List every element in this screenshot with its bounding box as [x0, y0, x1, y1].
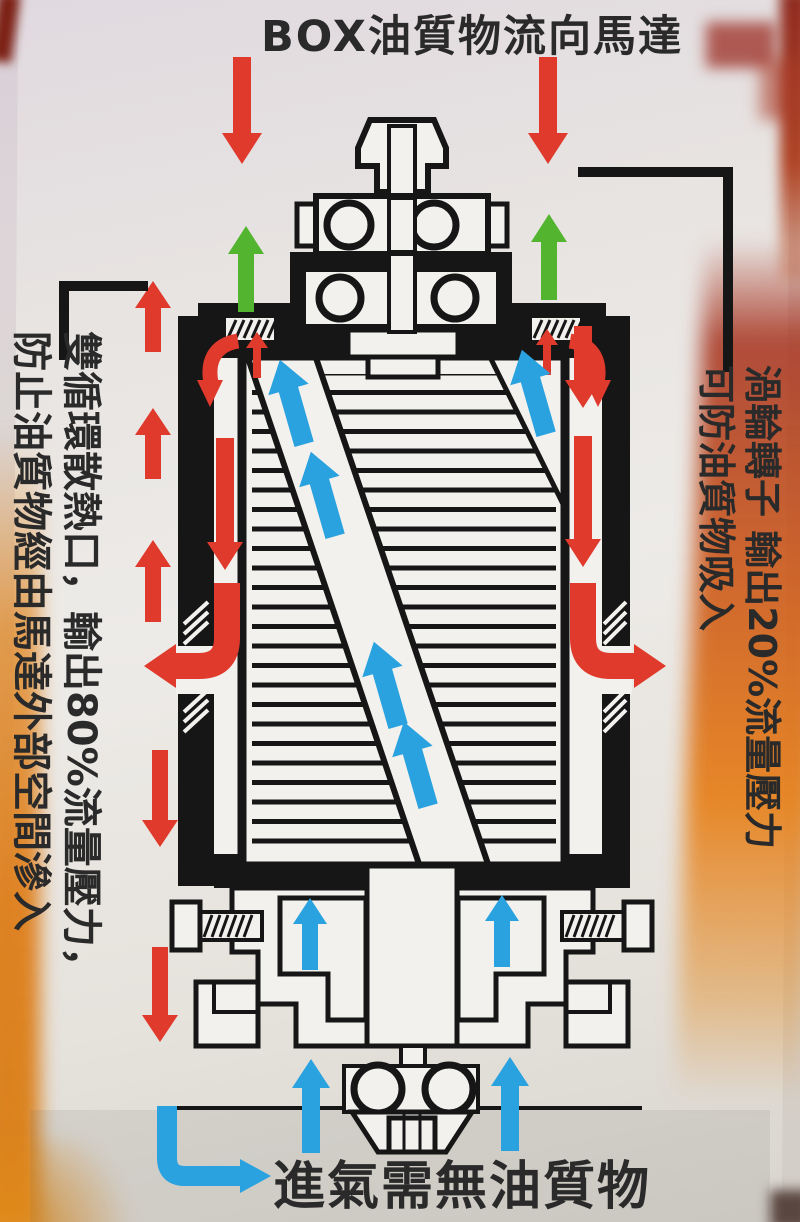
- base-foot-left: [196, 982, 258, 1046]
- left-annotation-line2: 防止油質物經由馬達外部空間滲入: [6, 331, 56, 1017]
- upper-bearing-block: [297, 196, 507, 254]
- red-down-arrow-outer-left-2: [142, 947, 178, 1042]
- red-down-arrow-outer-left-1: [142, 750, 178, 847]
- bearing-circle: [354, 1065, 402, 1113]
- bearing-circle: [425, 1065, 473, 1113]
- bearing-circle: [434, 277, 476, 319]
- left-annotation: 雙循環散熱口，輸出80%流量壓力， 防止油質物經由馬達外部空間滲入: [6, 317, 106, 1017]
- bearing-circle: [319, 277, 361, 319]
- right-annotation-line1: 渦輪轉子 輸出20%流量壓力: [739, 365, 785, 935]
- motor-cross-section-diagram: [0, 0, 800, 1222]
- bottom-label: 進氣需無油質物: [112, 1144, 800, 1219]
- lower-bearing-block: [344, 1046, 478, 1113]
- right-annotation-line2: 可防油質物吸入: [693, 365, 739, 935]
- left-annotation-line1: 雙循環散熱口，輸出80%流量壓力，: [56, 331, 106, 1017]
- base-housing: [196, 866, 628, 1046]
- base-foot-right: [566, 982, 628, 1046]
- right-annotation: 渦輪轉子 輸出20%流量壓力 可防油質物吸入: [695, 335, 785, 935]
- base-center-column: [367, 866, 457, 1046]
- top-title: BOX油質物流向馬達: [122, 2, 800, 64]
- green-up-arrow-left: [228, 226, 264, 312]
- bearing-circle: [412, 203, 456, 247]
- red-down-arrow-top-right: [528, 57, 568, 164]
- bearing-circle: [327, 203, 371, 247]
- photo-of-diagram-card: BOX油質物流向馬達 進氣需無油質物 渦輪轉子 輸出20%流量壓力 可防油質物吸…: [0, 0, 800, 1222]
- green-up-arrow-right: [531, 214, 567, 300]
- red-down-arrow-top-left: [222, 57, 262, 164]
- red-up-arrow-outer-left-1: [135, 281, 171, 352]
- red-up-arrow-outer-left-2: [135, 408, 171, 479]
- red-up-arrow-outer-left-3: [135, 540, 171, 622]
